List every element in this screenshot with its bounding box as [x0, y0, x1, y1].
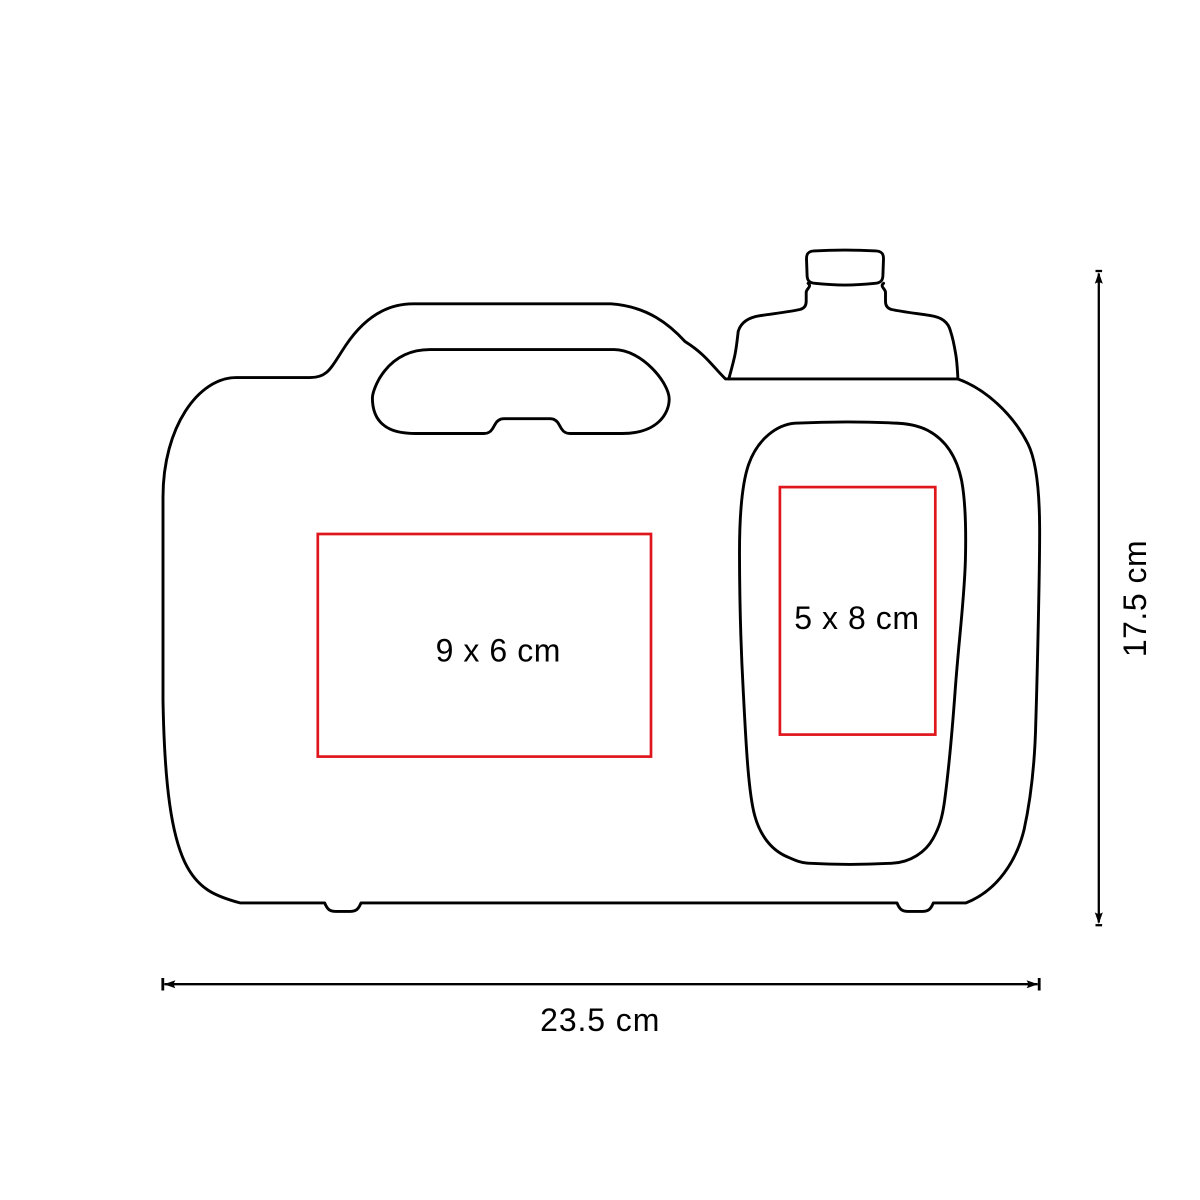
svg-text:17.5 cm: 17.5 cm [1117, 540, 1153, 657]
svg-text:23.5 cm: 23.5 cm [540, 1002, 660, 1038]
svg-text:9 x 6 cm: 9 x 6 cm [436, 632, 561, 668]
svg-text:5 x 8 cm: 5 x 8 cm [794, 600, 919, 636]
